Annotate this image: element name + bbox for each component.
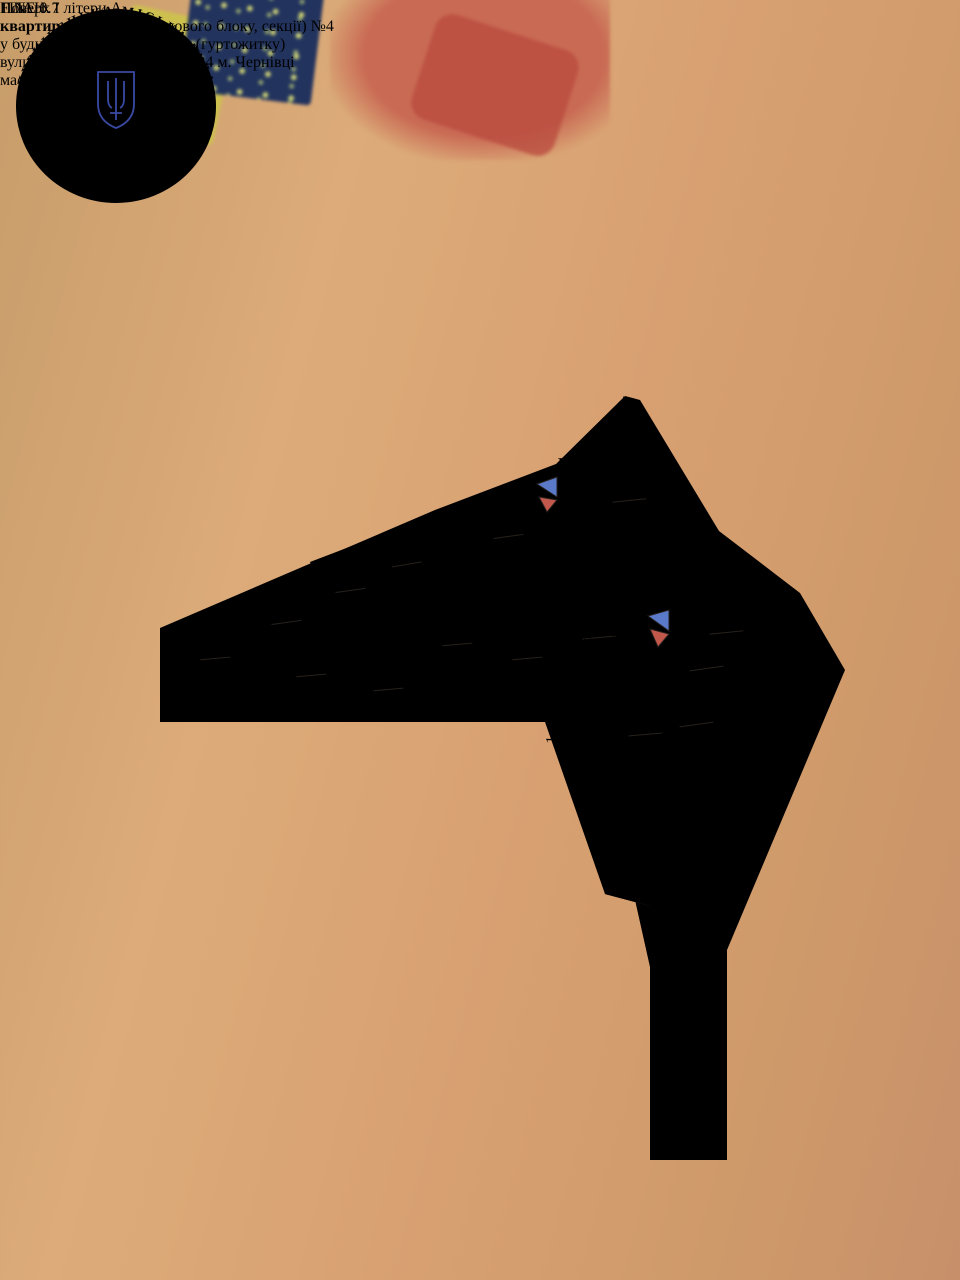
dimension-label: 1.34 xyxy=(199,632,228,651)
room-area: 6.70 xyxy=(513,656,542,675)
round-stamp: ЧЕРНІВЕЦЬКА МІСЬКА РАДА КОМУНАЛЬНЕ БЮРО … xyxy=(0,0,232,216)
apartment-number: №4 xyxy=(311,18,334,35)
dimension-label: 2.01 xyxy=(412,656,430,685)
dimension-label: 1.21 xyxy=(456,687,486,707)
dimension-label: 3.00 xyxy=(579,688,597,717)
dimension-label: 1.42 xyxy=(562,647,591,666)
dimension-label: 1.20 xyxy=(251,664,269,693)
dimension-label: 1.44 xyxy=(200,677,229,696)
floor-plan-drawing: 4-16.704-26.304-31.004-44.704-52.704-62.… xyxy=(140,380,880,1180)
dimension-label: 1.68 xyxy=(509,683,538,702)
dimension-label: 0.93 xyxy=(420,684,450,704)
tablecloth-yellow-stripe-patch xyxy=(835,0,960,340)
dimension-label: 1.56 xyxy=(183,657,201,686)
room-area: 2.70 xyxy=(201,656,230,675)
dimension-label: 1.01 xyxy=(599,729,617,758)
dimension-label: 0.80 xyxy=(249,623,267,652)
dimension-label: 1.88 xyxy=(491,661,509,690)
dimension-label: 1.17 xyxy=(559,738,588,757)
stamp-code: 30935793 xyxy=(91,143,141,153)
room-area: 1.00 xyxy=(374,687,403,706)
room-area: 6.30 xyxy=(443,642,472,661)
dimension-label: 1.80 xyxy=(640,739,669,758)
dimension-label: 2.91 xyxy=(296,679,326,699)
